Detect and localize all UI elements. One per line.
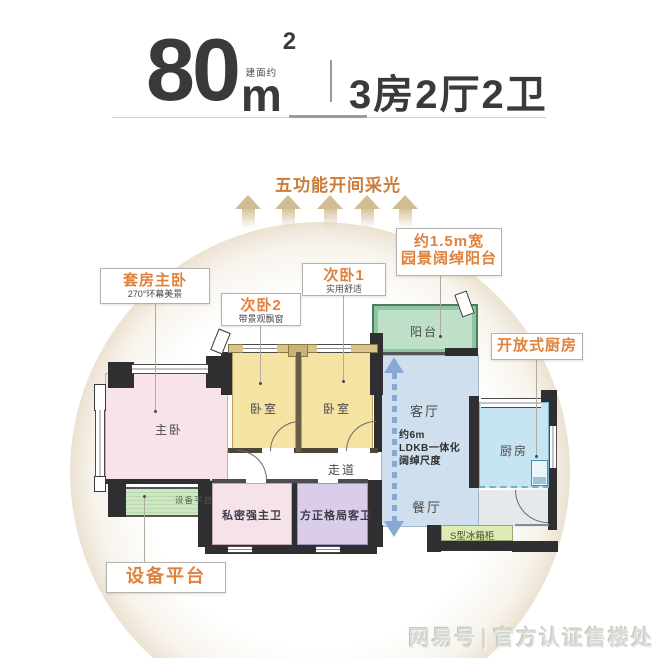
- leader-dot: [154, 410, 157, 413]
- up-arrow-icon: [235, 195, 261, 229]
- wall: [469, 396, 479, 488]
- callout-open-kitchen: 开放式厨房: [491, 333, 583, 360]
- callout-equipment-platform-title: 设备平台: [107, 566, 225, 587]
- leader-line: [343, 295, 344, 381]
- wall: [512, 541, 558, 552]
- room-label-bedroom-a: 卧室: [250, 400, 278, 417]
- balcony-door-track: [383, 352, 445, 355]
- area-value: 80: [146, 28, 238, 112]
- wall: [292, 483, 297, 545]
- living-dimension-note: 约6m LDKB一体化 阔绰尺度: [399, 429, 460, 468]
- room-label-master-bath: 私密强主卫: [222, 507, 282, 523]
- leader-line: [260, 325, 261, 383]
- room-label-corridor: 走道: [328, 461, 356, 478]
- kitchen-sink: [533, 477, 546, 484]
- callout-bedroom2: 次卧2 带景观飘窗: [221, 293, 301, 326]
- wall: [106, 479, 210, 484]
- wall: [212, 479, 368, 483]
- wall: [221, 352, 232, 395]
- leader-line: [440, 276, 441, 336]
- bay-window: [95, 410, 105, 477]
- leader-line: [536, 359, 537, 456]
- callout-bedroom1: 次卧1 实用舒适: [302, 263, 386, 296]
- room-label-fridge-cabinet: S型冰箱柜: [450, 528, 494, 542]
- wall: [370, 333, 383, 395]
- callout-open-kitchen-title: 开放式厨房: [492, 337, 582, 354]
- leader-dot: [342, 380, 345, 383]
- leader-dot: [143, 495, 146, 498]
- callout-master-suite-title: 套房主卧: [101, 272, 209, 289]
- callout-bedroom2-title: 次卧2: [222, 297, 300, 314]
- layout-title: 3房2厅2卫: [349, 62, 548, 120]
- height-arrow-line: [392, 373, 397, 521]
- room-label-kitchen: 厨房: [500, 442, 528, 459]
- window: [549, 426, 557, 468]
- area-exponent: 2: [283, 28, 296, 56]
- room-label-platform: 设备平台: [175, 494, 213, 506]
- header-underline-accent: [289, 115, 367, 118]
- wall: [427, 525, 441, 552]
- room-label-guest-bath: 方正格局客卫: [300, 507, 372, 523]
- entry-threshold: [515, 524, 549, 526]
- area-title: 80 建面约 m 2: [146, 28, 296, 112]
- room-label-balcony: 阳台: [410, 323, 438, 340]
- window-pillar: [94, 476, 106, 492]
- title-divider: [330, 60, 332, 102]
- wall: [548, 488, 557, 530]
- leader-line: [144, 498, 145, 562]
- leader-dot: [439, 335, 442, 338]
- wall: [198, 481, 212, 547]
- leader-line: [155, 304, 156, 412]
- callout-balcony-line1: 约1.5m宽: [397, 233, 501, 250]
- callout-balcony-line2: 园景阔绰阳台: [397, 250, 501, 267]
- door-opening: [318, 479, 338, 483]
- living-note-line1: 约6m: [399, 429, 460, 442]
- watermark-brand: 网易号: [409, 627, 478, 650]
- watermark-separator: |: [478, 627, 493, 650]
- wall: [108, 483, 126, 517]
- living-note-line3: 阔绰尺度: [399, 455, 460, 468]
- up-arrow-icon: [392, 195, 418, 229]
- floorplan-page: 80 建面约 m 2 3房2厅2卫 五功能开间采光: [0, 0, 660, 658]
- window: [317, 344, 351, 353]
- wall: [441, 541, 513, 551]
- area-unit-stack: 建面约 m: [241, 65, 282, 112]
- area-unit: m: [241, 79, 282, 112]
- room-label-living: 客厅: [410, 401, 440, 420]
- height-arrow-down-icon: [384, 521, 404, 537]
- watermark: 网易号|官方认证售楼处: [409, 622, 654, 652]
- callout-balcony: 约1.5m宽 园景阔绰阳台: [396, 228, 502, 276]
- watermark-text: 官方认证售楼处: [493, 627, 654, 650]
- room-label-master: 主卧: [155, 421, 183, 438]
- room-label-bedroom-b: 卧室: [323, 400, 351, 417]
- wall: [108, 362, 134, 388]
- window: [316, 546, 340, 553]
- lighting-note: 五功能开间采光: [238, 171, 438, 196]
- height-arrow-up-icon: [384, 357, 404, 373]
- wall: [445, 348, 478, 356]
- living-note-line2: LDKB一体化: [399, 442, 460, 455]
- callout-master-suite-subtitle: 270°环幕美景: [101, 289, 209, 300]
- room-label-dining: 餐厅: [412, 497, 442, 516]
- callout-bedroom2-subtitle: 带景观飘窗: [222, 314, 300, 325]
- window-pillar: [94, 384, 106, 411]
- window: [132, 364, 208, 374]
- callout-bedroom1-subtitle: 实用舒适: [303, 284, 385, 295]
- window: [228, 546, 252, 553]
- leader-dot: [259, 382, 262, 385]
- up-arrow-icon: [275, 195, 301, 229]
- window: [481, 398, 541, 408]
- up-arrow-icon: [317, 195, 343, 229]
- callout-master-suite: 套房主卧 270°环幕美景: [100, 268, 210, 304]
- callout-bedroom1-title: 次卧1: [303, 267, 385, 284]
- wall: [370, 525, 383, 547]
- callout-equipment-platform: 设备平台: [106, 562, 226, 593]
- up-arrow-icon: [354, 195, 380, 229]
- wall: [541, 390, 557, 402]
- leader-dot: [535, 455, 538, 458]
